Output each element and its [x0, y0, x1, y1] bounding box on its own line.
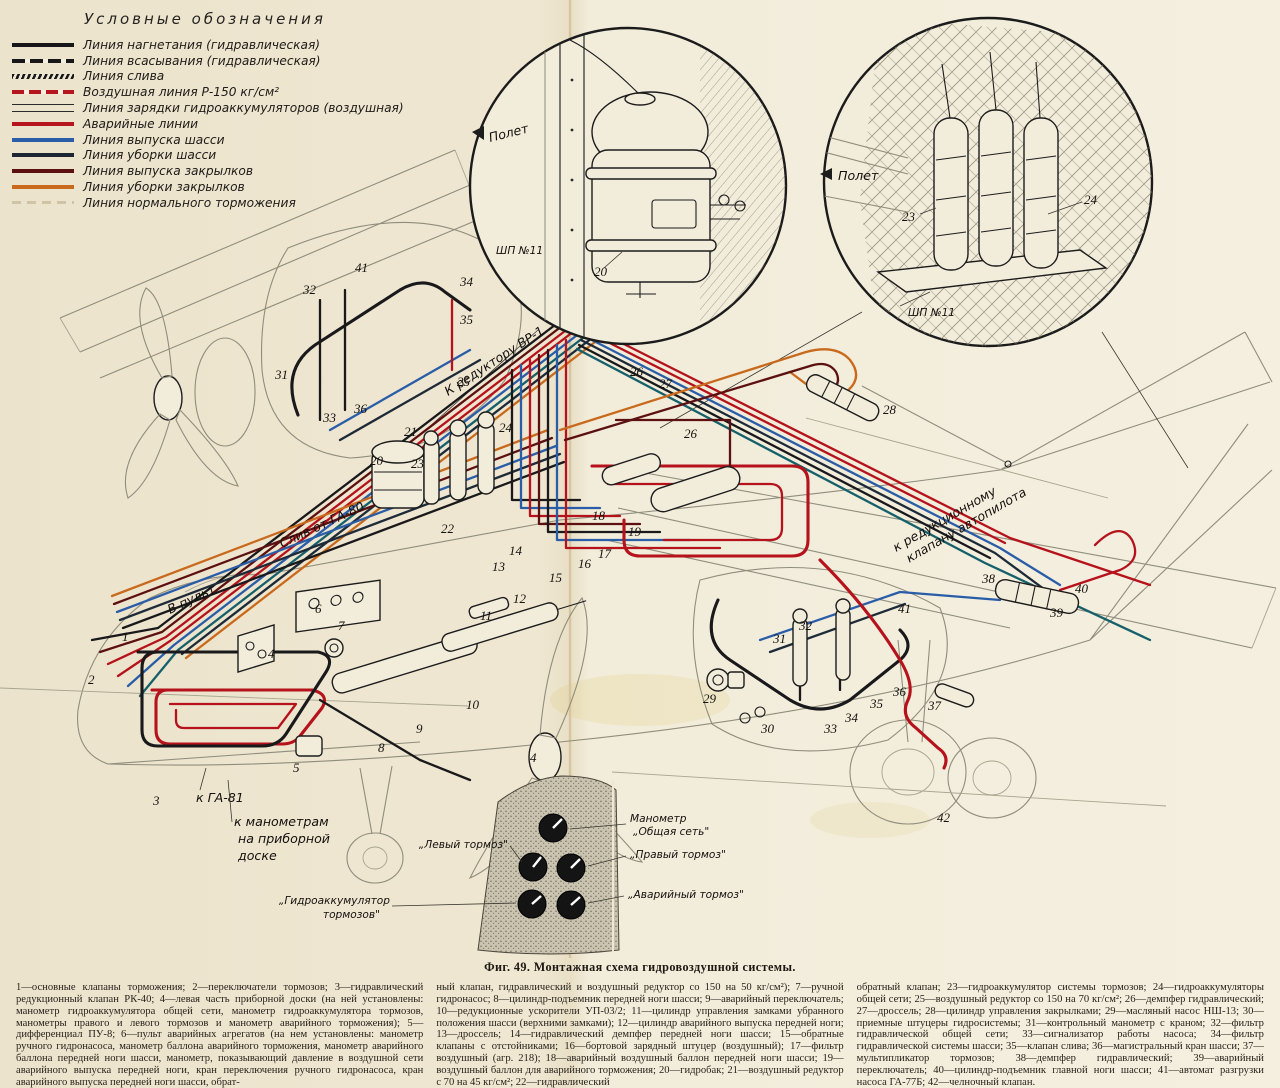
line-swatch-flaps-up	[12, 185, 74, 189]
legend-item-label: Линия выпуска шасси	[83, 134, 225, 146]
scanned-diagram-sheet: Условные обозначения Линия нагнетания (г…	[0, 0, 1280, 1088]
part-callout-30: 30	[760, 721, 775, 736]
line-swatch-gear-up	[12, 153, 74, 157]
line-swatch-air	[12, 90, 74, 94]
part-callout-41: 41	[898, 601, 911, 616]
differential-5	[296, 736, 322, 756]
part-callout-20: 20	[370, 453, 384, 468]
hand-pump-7	[325, 639, 343, 657]
legend-row: Линия нормального торможения	[12, 195, 432, 211]
part-callout-18: 18	[592, 508, 606, 523]
flap-cylinder-28	[804, 372, 882, 423]
parts-list-column-2: ный клапан, гидравлический и воздушный р…	[436, 982, 843, 1088]
part-callout-35: 35	[869, 696, 884, 711]
part-callout-4: 4	[530, 750, 537, 765]
legend-row: Линия уборки шасси	[12, 148, 432, 164]
accumulators-inset-direction-label: Полет	[838, 168, 879, 183]
filters-32-34	[793, 599, 850, 686]
line-swatch-gear-down	[12, 138, 74, 142]
part-callout-33: 33	[823, 721, 838, 736]
part-callout-1: 1	[122, 629, 129, 644]
tank-inset-part-label: 20	[594, 264, 608, 279]
accumulators-inset-frame-label: ШП №11	[908, 307, 955, 319]
part-callout-9: 9	[416, 721, 423, 736]
line-swatch-charging	[12, 104, 74, 112]
part-callout-22: 22	[441, 521, 455, 536]
legend-row: Линия нагнетания (гидравлическая)	[12, 37, 432, 53]
part-callout-6: 6	[315, 601, 322, 616]
part-callout-17: 17	[598, 546, 612, 561]
label-gauge-right: „Правый тормоз"	[630, 849, 726, 861]
label-gauge-accum-2: тормозов"	[323, 909, 380, 921]
label-gauge-accum-1: „Гидроаккумулятор	[279, 895, 390, 907]
part-callout-8: 8	[378, 740, 385, 755]
legend-row: Линия зарядки гидроаккумуляторов (воздуш…	[12, 100, 432, 116]
accumulators-23-24	[424, 412, 494, 504]
part-callout-4: 4	[268, 646, 275, 661]
tank-inset-frame-label: ШП №11	[496, 245, 543, 257]
legend-item-label: Воздушная линия Р-150 кг/см²	[83, 86, 279, 98]
gauge-emergency-brake	[557, 891, 585, 919]
part-callout-23: 23	[411, 456, 425, 471]
legend-item-label: Линия всасывания (гидравлическая)	[83, 55, 321, 67]
part-callout-38: 38	[981, 571, 996, 586]
legend-item-label: Линия слива	[83, 70, 164, 82]
part-callout-12: 12	[513, 591, 527, 606]
part-callout-25: 25	[457, 374, 471, 389]
part-callout-13: 13	[492, 559, 506, 574]
legend-item-label: Линия нагнетания (гидравлическая)	[83, 39, 320, 51]
line-swatch-emergency	[12, 122, 74, 126]
line-swatch-pressure	[12, 43, 74, 47]
label-to-gauges-1: к манометрам	[234, 814, 329, 829]
legend-item-label: Линия нормального торможения	[83, 197, 296, 209]
label-gauge-left: „Левый тормоз"	[419, 839, 508, 851]
label-gauge-common-2: „Общая сеть"	[633, 826, 709, 838]
part-callout-39: 39	[1049, 605, 1064, 620]
part-callout-37: 37	[927, 698, 942, 713]
legend-item-label: Линия выпуска закрылков	[83, 165, 253, 177]
gauge-right-brake	[557, 854, 585, 882]
part-callout-24: 24	[499, 420, 513, 435]
figure-caption: Фиг. 49. Монтажная схема гидровоздушной …	[0, 960, 1280, 975]
part-callout-14: 14	[509, 543, 523, 558]
legend-item-label: Аварийные линии	[83, 118, 198, 130]
legend: Условные обозначения Линия нагнетания (г…	[12, 12, 432, 211]
legend-row: Линия выпуска закрылков	[12, 163, 432, 179]
legend-row: Линия выпуска шасси	[12, 132, 432, 148]
part-callout-27: 27	[659, 376, 673, 391]
part-callout-15: 15	[549, 570, 563, 585]
part-callout-26: 26	[684, 426, 698, 441]
legend-item-label: Линия зарядки гидроаккумуляторов (воздуш…	[83, 102, 404, 114]
part-callout-11: 11	[480, 608, 492, 623]
hydraulic-tank-20	[372, 441, 424, 508]
part-callout-36: 36	[892, 684, 907, 699]
part-callout-42: 42	[937, 810, 951, 825]
oil-pump-29	[707, 669, 744, 691]
part-callout-31: 31	[772, 631, 786, 646]
parts-list-column-1: 1—основные клапаны торможения; 2—переклю…	[16, 982, 423, 1088]
label-gauge-emergency: „Аварийный тормоз"	[628, 889, 744, 901]
part-callout-32: 32	[798, 618, 813, 633]
line-swatch-normal-braking	[12, 201, 74, 204]
air-bottle-19	[600, 451, 663, 487]
part-callout-16: 16	[578, 556, 592, 571]
legend-row: Линия слива	[12, 69, 432, 85]
line-swatch-flaps-down	[12, 169, 74, 173]
gauge-brake-accumulator	[518, 890, 546, 918]
accumulators-inset: Полет 23 24 ШП №11	[820, 18, 1152, 346]
legend-item-label: Линия уборки закрылков	[83, 181, 245, 193]
part-callout-35: 35	[459, 312, 474, 327]
part-callout-2: 2	[88, 672, 95, 687]
line-swatch-suction	[12, 59, 74, 63]
part-callout-41: 41	[355, 260, 368, 275]
part-callout-34: 34	[844, 710, 859, 725]
accumulators-inset-left-label: 23	[902, 209, 916, 224]
legend-row: Воздушная линия Р-150 кг/см²	[12, 84, 432, 100]
line-swatch-drain	[12, 74, 74, 79]
legend-row: Линия всасывания (гидравлическая)	[12, 53, 432, 69]
accumulators-inset-right-label: 24	[1084, 192, 1098, 207]
part-callout-40: 40	[1075, 581, 1089, 596]
part-callout-7: 7	[338, 618, 345, 633]
legend-row: Аварийные линии	[12, 116, 432, 132]
part-callout-32: 32	[302, 282, 317, 297]
parts-list-column-3: обратный клапан; 23—гидроаккумулятор сис…	[857, 982, 1264, 1088]
part-callout-5: 5	[293, 760, 300, 775]
label-to-ga81: к ГА-81	[196, 790, 244, 805]
part-callout-19: 19	[628, 524, 642, 539]
left-prop-spinner	[154, 376, 182, 420]
part-callout-3: 3	[152, 793, 160, 808]
legend-row: Линия уборки закрылков	[12, 179, 432, 195]
label-to-gauges-3: доске	[237, 848, 277, 863]
part-callout-26: 26	[630, 364, 644, 379]
part-callout-21: 21	[404, 424, 417, 439]
part-callout-29: 29	[703, 691, 717, 706]
part-callout-28: 28	[883, 402, 897, 417]
tank-inset: Полет ШП №11 20	[470, 28, 790, 344]
parts-list: 1—основные клапаны торможения; 2—переклю…	[0, 982, 1280, 1088]
bottom-text-block: Фиг. 49. Монтажная схема гидровоздушной …	[0, 958, 1280, 1088]
legend-title: Условные обозначения	[84, 12, 432, 27]
legend-item-label: Линия уборки шасси	[83, 149, 216, 161]
part-callout-10: 10	[466, 697, 480, 712]
part-callout-33: 33	[322, 410, 337, 425]
part-callout-31: 31	[274, 367, 288, 382]
part-callout-36: 36	[353, 401, 368, 416]
part-callout-34: 34	[459, 274, 474, 289]
gauge-common-net	[539, 814, 567, 842]
gauge-left-brake	[519, 853, 547, 881]
label-gauge-common-1: Манометр	[630, 813, 687, 825]
label-to-gauges-2: на приборной	[238, 831, 330, 846]
